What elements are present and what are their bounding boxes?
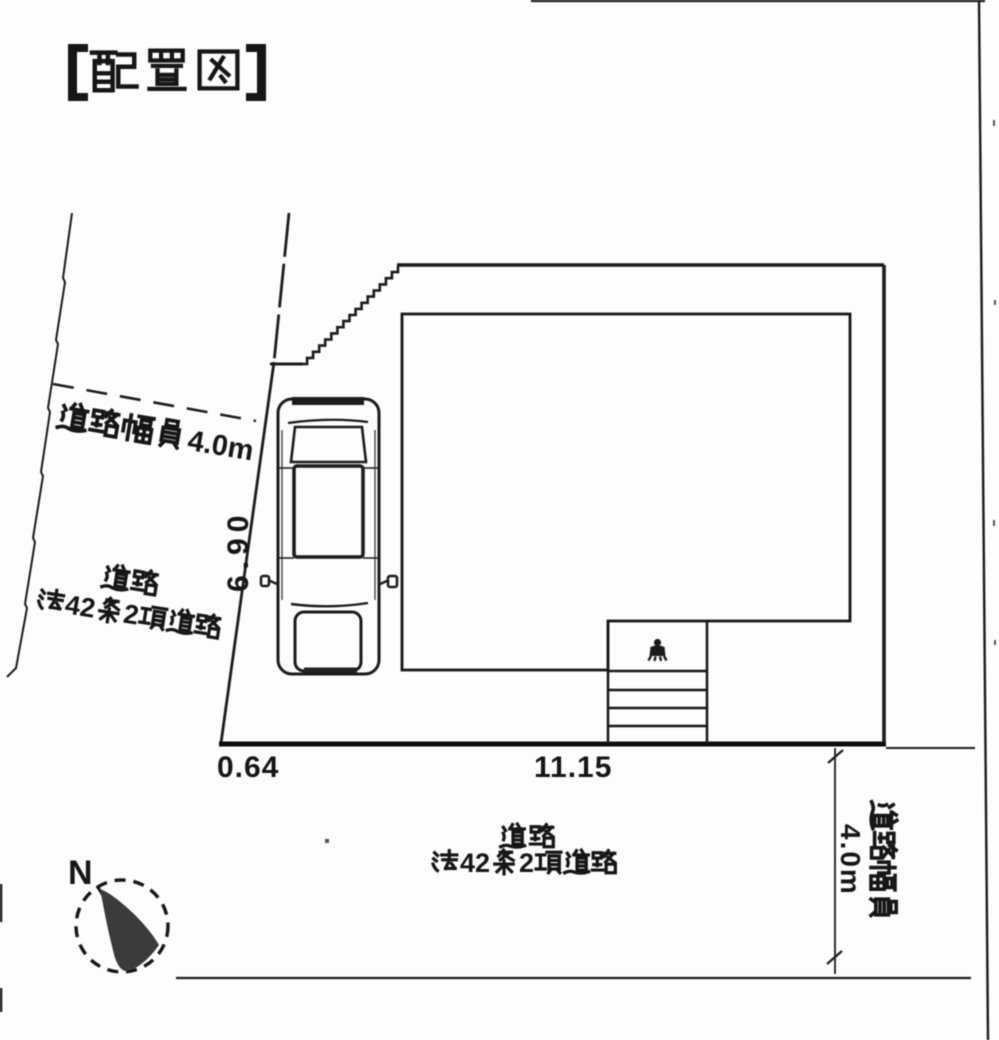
svg-text:6.90: 6.90 bbox=[222, 510, 255, 592]
svg-text:4.0m: 4.0m bbox=[835, 824, 866, 896]
svg-text:N: N bbox=[68, 854, 93, 892]
svg-text:2: 2 bbox=[519, 848, 534, 878]
svg-text:11.15: 11.15 bbox=[534, 751, 612, 784]
svg-text:42: 42 bbox=[63, 589, 97, 623]
svg-text:42: 42 bbox=[460, 848, 490, 878]
svg-text:0.64: 0.64 bbox=[217, 751, 279, 784]
